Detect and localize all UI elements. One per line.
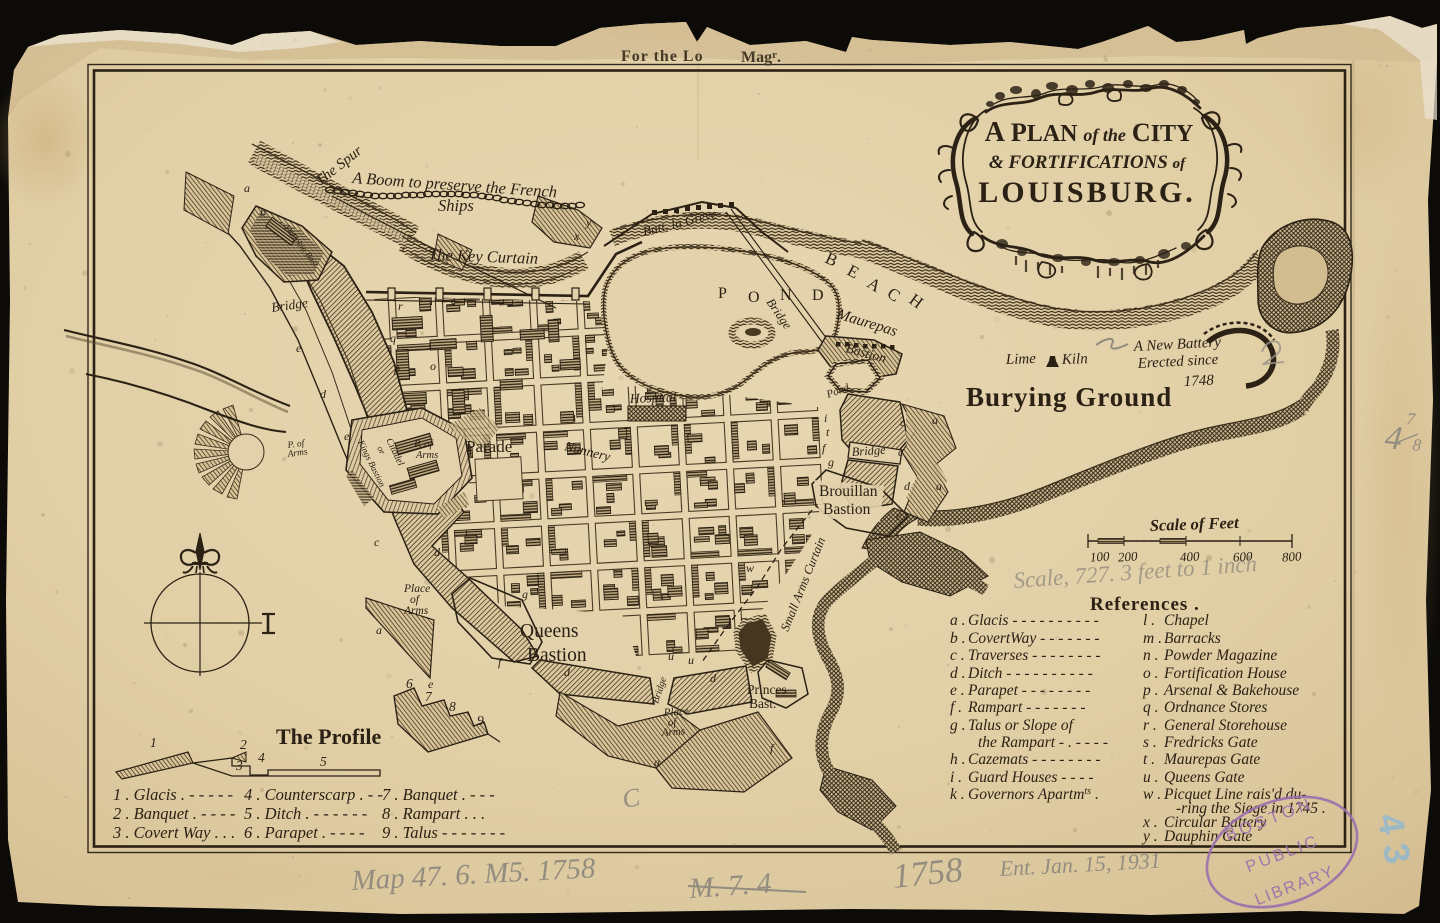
svg-text:e: e bbox=[344, 429, 350, 443]
svg-text:1: 1 bbox=[150, 735, 157, 750]
svg-text:Brouillan: Brouillan bbox=[819, 483, 878, 500]
svg-text:h .: h . bbox=[950, 751, 966, 768]
svg-text:For the Lo: For the Lo bbox=[621, 48, 704, 65]
svg-text:a: a bbox=[376, 623, 382, 637]
svg-text:d: d bbox=[564, 665, 571, 679]
svg-text:w .: w . bbox=[1143, 786, 1161, 803]
svg-text:a: a bbox=[654, 755, 660, 769]
svg-text:Traverses - - - - - - - -: Traverses - - - - - - - - bbox=[968, 647, 1101, 664]
svg-text:u: u bbox=[688, 653, 694, 667]
svg-text:3: 3 bbox=[235, 758, 243, 773]
svg-text:4 3: 4 3 bbox=[1370, 810, 1419, 866]
svg-text:N: N bbox=[780, 287, 792, 304]
svg-text:n .: n . bbox=[1143, 647, 1159, 664]
svg-text:4: 4 bbox=[258, 750, 265, 765]
svg-text:d: d bbox=[710, 671, 717, 685]
svg-text:s: s bbox=[450, 295, 455, 309]
svg-text:1758: 1758 bbox=[891, 850, 965, 896]
svg-text:c: c bbox=[896, 509, 902, 523]
svg-text:d: d bbox=[904, 479, 911, 493]
svg-text:g: g bbox=[522, 587, 528, 601]
svg-text:d: d bbox=[434, 545, 441, 559]
svg-text:p .: p . bbox=[1142, 682, 1159, 699]
svg-text:c: c bbox=[900, 415, 906, 429]
svg-text:g: g bbox=[828, 455, 834, 469]
svg-text:Bastion: Bastion bbox=[527, 645, 587, 666]
svg-text:Bastion: Bastion bbox=[823, 501, 871, 518]
svg-text:b .: b . bbox=[950, 630, 966, 647]
svg-text:P. of: P. of bbox=[413, 439, 435, 450]
svg-text:l .: l . bbox=[1143, 612, 1155, 629]
svg-text:Lime: Lime bbox=[1005, 351, 1037, 368]
svg-text:6: 6 bbox=[406, 676, 413, 691]
svg-text:Scale of Feet: Scale of Feet bbox=[1149, 513, 1239, 535]
svg-text:w: w bbox=[746, 561, 754, 575]
svg-text:o: o bbox=[430, 359, 436, 373]
svg-text:q .: q . bbox=[1143, 699, 1159, 716]
svg-text:6 . Parapet . - - - -: 6 . Parapet . - - - - bbox=[244, 823, 365, 842]
svg-text:d: d bbox=[320, 387, 327, 401]
svg-text:7 . Banquet . - - -: 7 . Banquet . - - - bbox=[382, 785, 495, 804]
svg-text:o .: o . bbox=[1143, 665, 1159, 682]
svg-text:e: e bbox=[296, 341, 302, 355]
svg-text:Ships: Ships bbox=[438, 196, 474, 215]
svg-text:P: P bbox=[718, 285, 727, 302]
svg-text:c: c bbox=[374, 535, 380, 549]
svg-text:Hospital: Hospital bbox=[629, 389, 677, 406]
svg-text:5 . Ditch . - - - - - -: 5 . Ditch . - - - - - - bbox=[244, 804, 367, 823]
svg-text:General Storehouse: General Storehouse bbox=[1164, 717, 1287, 734]
svg-text:the Rampart - . - - - -: the Rampart - . - - - - bbox=[978, 734, 1108, 751]
svg-text:Parade: Parade bbox=[466, 437, 512, 456]
svg-text:CovertWay - - - - - - -: CovertWay - - - - - - - bbox=[968, 630, 1100, 647]
svg-text:1 . Glacis . - - - - -: 1 . Glacis . - - - - - bbox=[113, 785, 233, 804]
svg-text:Arms: Arms bbox=[660, 725, 685, 739]
svg-text:a: a bbox=[932, 413, 938, 427]
svg-text:8: 8 bbox=[449, 699, 456, 714]
svg-text:5: 5 bbox=[320, 754, 327, 769]
svg-text:Rampart - - - - - - -: Rampart - - - - - - - bbox=[967, 699, 1086, 716]
svg-text:a: a bbox=[244, 181, 250, 195]
svg-text:q: q bbox=[390, 331, 396, 345]
svg-text:Guard Houses - - - -: Guard Houses - - - - bbox=[968, 769, 1094, 786]
svg-text:Cazemats - - - - - - - -: Cazemats - - - - - - - - bbox=[968, 751, 1101, 768]
svg-text:Bast.: Bast. bbox=[749, 696, 776, 711]
svg-text:Maurepas Gate: Maurepas Gate bbox=[1163, 751, 1260, 768]
svg-text:i .: i . bbox=[950, 769, 962, 786]
svg-text:Glacis - - - - - - - - - -: Glacis - - - - - - - - - - bbox=[968, 612, 1099, 629]
svg-text:LOUISBURG.: LOUISBURG. bbox=[978, 176, 1196, 209]
svg-text:O: O bbox=[748, 289, 760, 306]
svg-text:b: b bbox=[260, 205, 266, 219]
svg-text:Fredricks Gate: Fredricks Gate bbox=[1163, 734, 1258, 751]
svg-text:D: D bbox=[812, 287, 824, 304]
svg-text:Barracks: Barracks bbox=[1164, 630, 1221, 647]
svg-text:Queens: Queens bbox=[520, 621, 578, 642]
svg-text:c .: c . bbox=[950, 647, 965, 664]
svg-text:& FORTIFICATIONS of: & FORTIFICATIONS of bbox=[989, 152, 1187, 173]
svg-text:Governors Apartmts .: Governors Apartmts . bbox=[968, 786, 1099, 803]
svg-text:p: p bbox=[393, 361, 400, 375]
svg-text:Arms: Arms bbox=[415, 450, 438, 461]
svg-text:Queens Gate: Queens Gate bbox=[1164, 769, 1245, 786]
svg-text:c: c bbox=[402, 241, 408, 255]
svg-text:r: r bbox=[398, 299, 403, 313]
svg-text:9: 9 bbox=[477, 713, 484, 728]
svg-text:Ordnance Stores: Ordnance Stores bbox=[1164, 699, 1267, 716]
svg-text:s .: s . bbox=[1143, 734, 1157, 751]
svg-text:2 . Banquet . - - - -: 2 . Banquet . - - - - bbox=[113, 804, 235, 823]
svg-text:y: y bbox=[585, 215, 592, 229]
svg-text:y .: y . bbox=[1141, 828, 1158, 845]
svg-text:8 . Rampart . . .: 8 . Rampart . . . bbox=[382, 804, 485, 823]
svg-text:a: a bbox=[936, 479, 942, 493]
svg-text:Kiln: Kiln bbox=[1061, 351, 1088, 368]
svg-text:r .: r . bbox=[1143, 717, 1157, 734]
svg-text:Princes: Princes bbox=[747, 682, 787, 697]
svg-text:Burying Ground: Burying Ground bbox=[966, 382, 1172, 412]
svg-text:c: c bbox=[898, 445, 904, 459]
svg-text:Parapet - - - - - - - -: Parapet - - - - - - - - bbox=[967, 682, 1090, 699]
svg-text:9 . Talus - - - - - - -: 9 . Talus - - - - - - - bbox=[382, 823, 505, 842]
svg-text:1748: 1748 bbox=[1183, 372, 1214, 390]
svg-text:2: 2 bbox=[240, 737, 247, 752]
svg-text:Arms: Arms bbox=[403, 605, 429, 617]
svg-text:k .: k . bbox=[950, 786, 965, 803]
svg-text:a .: a . bbox=[950, 612, 966, 629]
svg-text:Bridge: Bridge bbox=[851, 443, 886, 459]
svg-text:Arsenal & Bakehouse: Arsenal & Bakehouse bbox=[1163, 682, 1299, 699]
svg-text:Chapel: Chapel bbox=[1164, 612, 1209, 629]
svg-text:Fortification House: Fortification House bbox=[1163, 665, 1287, 682]
svg-text:The Key Curtain: The Key Curtain bbox=[428, 245, 539, 268]
svg-text:g .: g . bbox=[950, 717, 966, 734]
svg-text:d .: d . bbox=[950, 665, 966, 682]
svg-text:t .: t . bbox=[1143, 751, 1155, 768]
svg-text:Talus or Slope of: Talus or Slope of bbox=[968, 717, 1076, 734]
svg-text:800: 800 bbox=[1281, 548, 1302, 564]
svg-text:f .: f . bbox=[950, 699, 962, 716]
svg-text:x: x bbox=[573, 229, 580, 243]
svg-text:The Profile: The Profile bbox=[276, 724, 382, 749]
svg-text:4 . Counterscarp . - -: 4 . Counterscarp . - - bbox=[244, 785, 383, 804]
svg-text:Powder Magazine: Powder Magazine bbox=[1163, 647, 1277, 664]
svg-text:m .: m . bbox=[1143, 630, 1162, 647]
svg-text:e .: e . bbox=[950, 682, 965, 699]
svg-text:u .: u . bbox=[1143, 769, 1159, 786]
svg-text:u: u bbox=[668, 649, 674, 663]
svg-text:Ditch - - - - - - - - - -: Ditch - - - - - - - - - - bbox=[967, 665, 1093, 682]
svg-text:i: i bbox=[824, 411, 827, 425]
svg-text:3 . Covert Way . . .: 3 . Covert Way . . . bbox=[112, 823, 235, 842]
